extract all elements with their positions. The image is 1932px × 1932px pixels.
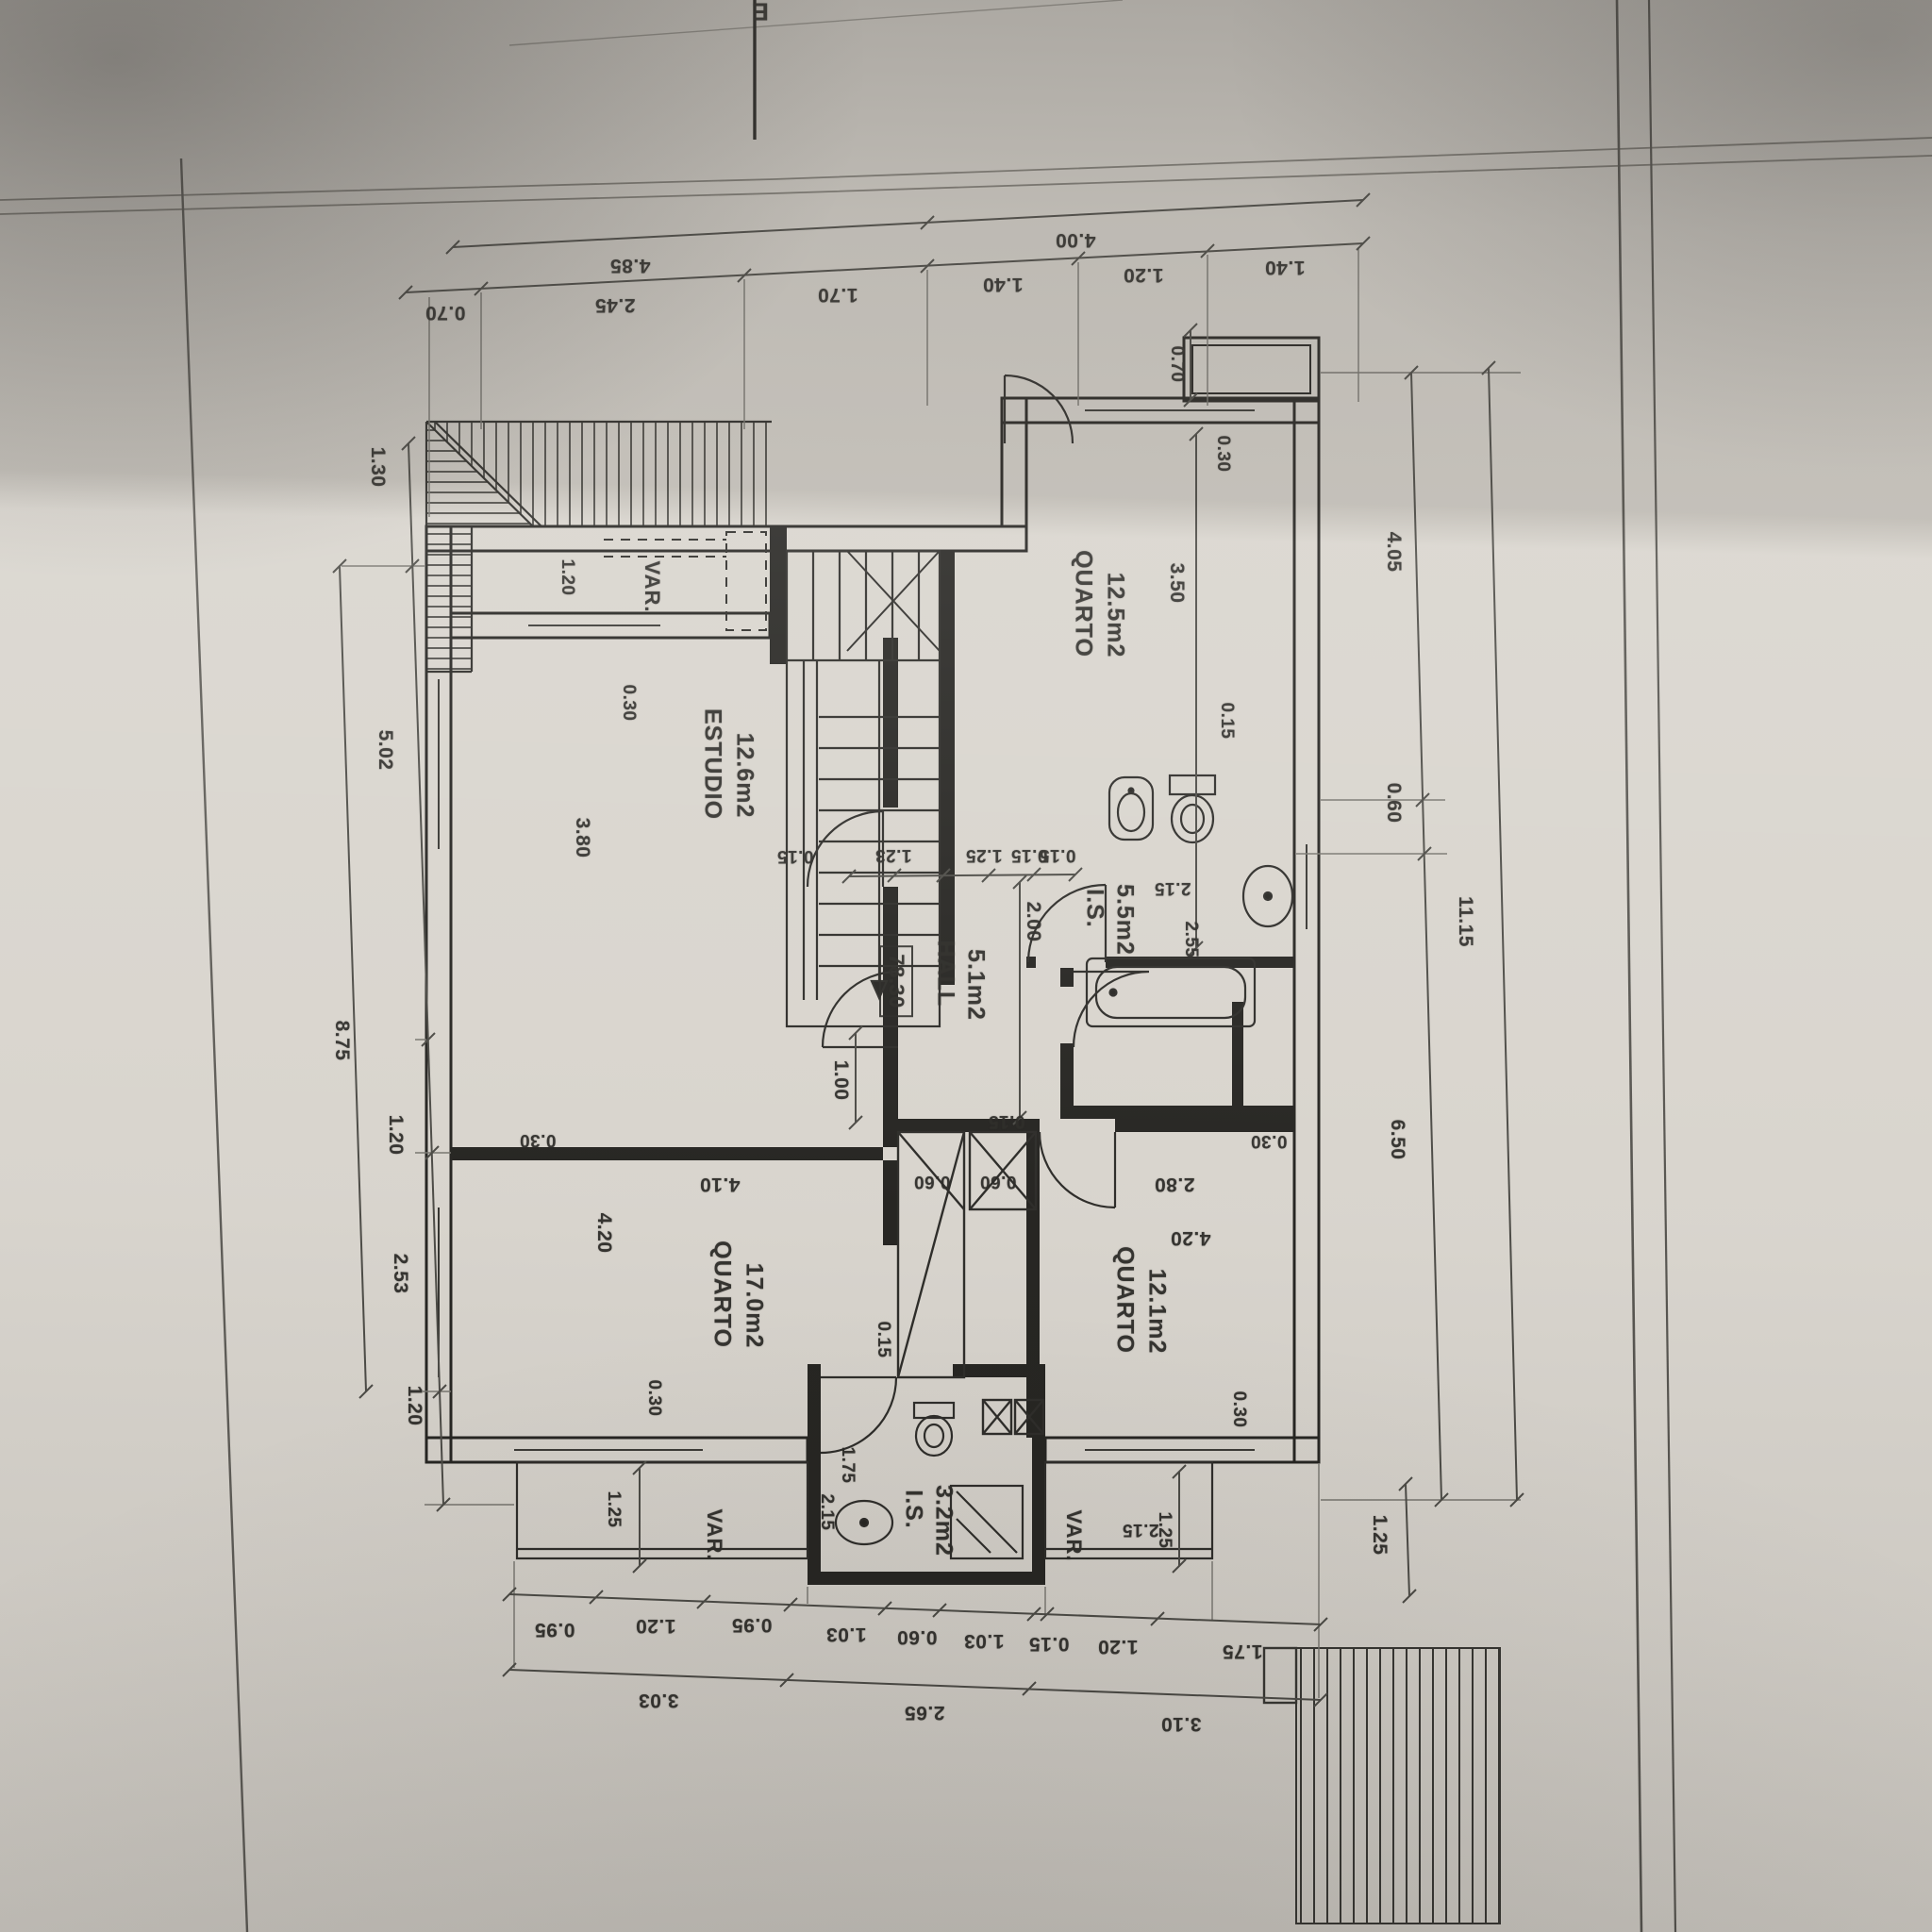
total-area-box: 78.30 <box>879 945 913 1017</box>
shower-icon <box>951 1486 1023 1558</box>
dim-q3-030b: 0.30 <box>1228 1391 1249 1428</box>
room-label-is2-name: I.S. <box>900 1490 927 1529</box>
dim-bottom-seg-103b: 1.03 <box>964 1629 1005 1652</box>
dim-left-seg-120b: 1.20 <box>403 1386 425 1426</box>
dim-est-030: 0.30 <box>618 685 639 722</box>
dim-is1-215: 2.15 <box>1155 877 1191 898</box>
dim-bottom-seg-175: 1.75 <box>1223 1640 1263 1662</box>
dim-hall-100: 1.00 <box>829 1060 852 1101</box>
washbasin-icon <box>1243 866 1292 926</box>
dim-bottom-seg-060: 0.60 <box>897 1625 938 1648</box>
dim-left-seg-120a: 1.20 <box>384 1115 407 1156</box>
dim-q3-280: 2.80 <box>1155 1173 1195 1195</box>
room-label-quarto3-name: QUARTO <box>1111 1246 1139 1354</box>
dim-right-seg-650: 6.50 <box>1386 1120 1408 1160</box>
dim-q2-175: 1.75 <box>837 1447 858 1484</box>
sheet-corner-letter: E <box>752 0 769 26</box>
dim-varbl-215: 2.15 <box>816 1494 837 1531</box>
room-label-hall-area: 5.1m2 <box>962 949 990 1021</box>
washbasin2-icon <box>836 1501 892 1544</box>
dim-right-total-1115: 11.15 <box>1454 896 1476 947</box>
room-label-quarto1-name: QUARTO <box>1070 550 1097 658</box>
dim-q2-410: 4.10 <box>700 1173 741 1195</box>
toilet2-icon <box>914 1403 954 1456</box>
dim-bottom-total-310: 3.10 <box>1161 1712 1202 1735</box>
dim-bottom-seg-103a: 1.03 <box>826 1623 867 1645</box>
dim-right-seg-060: 0.60 <box>1382 783 1405 824</box>
dim-top-seg-245: 2.45 <box>595 293 636 316</box>
dim-corridor-200: 2.00 <box>1022 902 1044 942</box>
room-label-quarto2-name: QUARTO <box>708 1241 736 1348</box>
dim-bottom-seg-120b: 1.20 <box>1098 1635 1139 1657</box>
dim-q1-030: 0.30 <box>1212 436 1233 473</box>
dim-stair-123: 1.23 <box>875 844 912 865</box>
room-label-quarto2-area: 17.0m2 <box>741 1263 768 1349</box>
room-label-quarto3-area: 12.1m2 <box>1143 1269 1171 1355</box>
dim-q3-420: 4.20 <box>1171 1226 1211 1249</box>
dim-top-seg-170: 1.70 <box>818 283 858 306</box>
dim-q1-015: 0.15 <box>1216 703 1237 740</box>
photographed-floor-plan-sheet: E 4.85 4.00 0.70 2.45 1.70 1.40 1.20 1.4… <box>0 0 1932 1932</box>
room-label-estudio-area: 12.6m2 <box>731 733 758 819</box>
dim-bottom-total-265: 2.65 <box>905 1701 945 1724</box>
room-label-hall-name: HALL <box>932 941 959 1008</box>
exterior-steps-hatch <box>1264 1648 1500 1924</box>
interior-walls <box>451 526 1294 1585</box>
dim-wardrobe-060b: 0.60 <box>980 1171 1017 1191</box>
dimension-lines <box>333 193 1524 1707</box>
room-label-is1-name: I.S. <box>1081 889 1108 928</box>
label-var-top: VAR. <box>640 561 664 613</box>
room-label-estudio-name: ESTUDIO <box>699 708 726 820</box>
dim-bottom-seg-095b: 0.95 <box>732 1613 773 1636</box>
dim-left-seg-130: 1.30 <box>366 447 389 488</box>
dim-top-total-485: 4.85 <box>610 254 651 276</box>
room-label-is2-area: 3.2m2 <box>930 1485 958 1557</box>
roof-hatch <box>426 422 772 672</box>
dim-top-seg-120: 1.20 <box>1124 263 1164 286</box>
dim-top-seg-140a: 1.40 <box>983 273 1024 295</box>
dim-bottom-total-303: 3.03 <box>639 1689 679 1711</box>
bathtub-icon <box>1087 958 1255 1026</box>
dim-est-380: 3.80 <box>571 818 593 858</box>
dim-bottom-seg-095a: 0.95 <box>535 1618 575 1641</box>
room-label-quarto1-area: 12.5m2 <box>1102 573 1129 658</box>
dim-est-015: 0.15 <box>777 845 814 866</box>
dim-top-seg-140b: 1.40 <box>1265 256 1306 278</box>
label-var-bottom-left: VAR. <box>702 1509 726 1561</box>
dim-top-total-400: 4.00 <box>1056 228 1096 251</box>
dim-bottom-seg-120a: 1.20 <box>636 1614 676 1637</box>
dim-varbl-125: 1.25 <box>603 1491 624 1528</box>
label-var-bottom-right: VAR. <box>1061 1510 1086 1562</box>
dim-wardrobe-060a: 0.60 <box>914 1171 951 1191</box>
dim-q2-420: 4.20 <box>592 1213 615 1254</box>
room-label-is1-area: 5.5m2 <box>1111 884 1139 956</box>
dim-q1-350: 3.50 <box>1165 563 1188 604</box>
dim-q3-030a: 0.30 <box>1251 1130 1288 1151</box>
dim-right-extra-125: 1.25 <box>1368 1515 1391 1556</box>
dim-left-total-875: 8.75 <box>330 1021 353 1061</box>
dim-var-120: 1.20 <box>557 559 577 596</box>
dim-q2-015: 0.15 <box>873 1322 893 1358</box>
dim-balcony-070: 0.70 <box>1166 346 1187 383</box>
dim-varbr-125: 1.25 <box>1154 1512 1174 1549</box>
dim-stair-015b: 0.15 <box>1040 844 1076 865</box>
dim-is1-255: 2.55 <box>1180 922 1201 958</box>
dim-hall-015: 0.15 <box>989 1110 1025 1131</box>
bidet-icon <box>1109 777 1153 840</box>
bathroom-fixtures <box>836 775 1292 1558</box>
dim-stair-125: 1.25 <box>966 844 1003 865</box>
dim-right-seg-405: 4.05 <box>1382 532 1405 573</box>
dim-q2-030a: 0.30 <box>520 1129 557 1150</box>
dim-top-seg-070: 0.70 <box>425 301 466 324</box>
dim-left-seg-502: 5.02 <box>374 730 396 771</box>
toilet-icon <box>1170 775 1215 842</box>
dim-left-seg-253: 2.53 <box>389 1254 411 1294</box>
dim-bottom-seg-015: 0.15 <box>1029 1632 1070 1655</box>
dim-q2-030b: 0.30 <box>643 1380 664 1417</box>
